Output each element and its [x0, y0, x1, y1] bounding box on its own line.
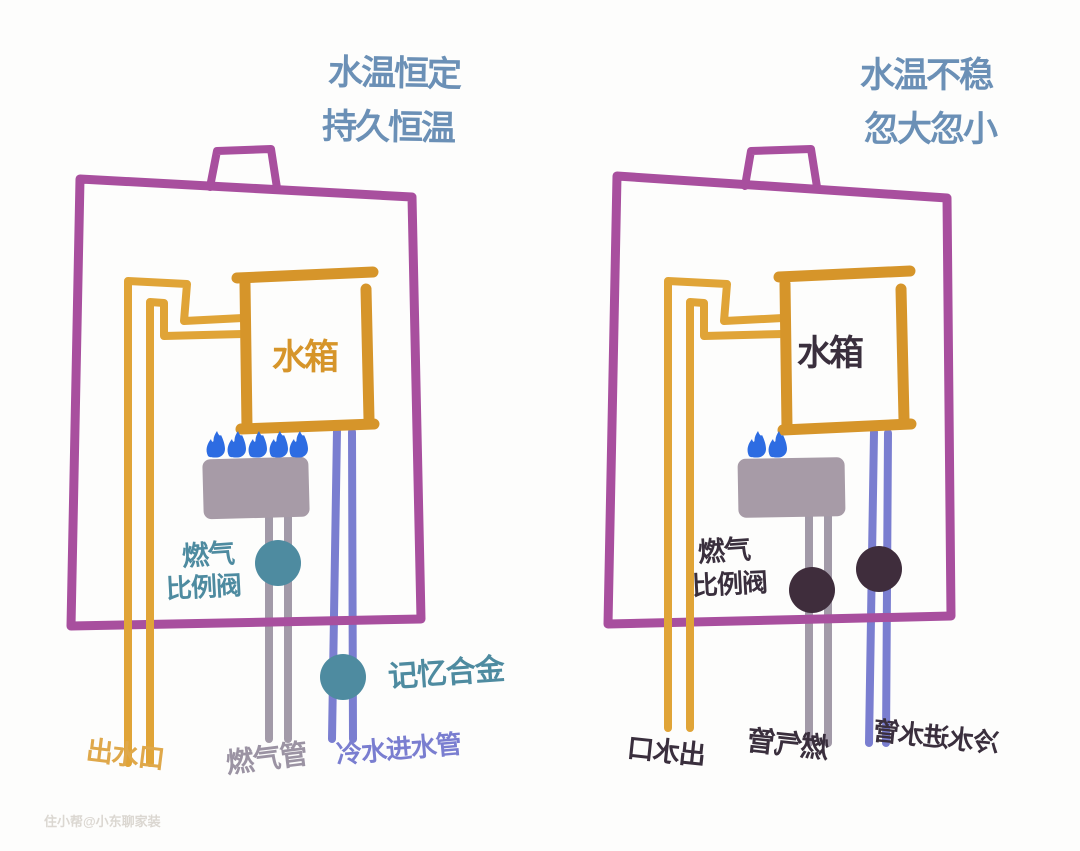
flame-icon	[228, 431, 246, 458]
hand-drawn-water-heater-comparison: 水温恒定 持久恒温 水温不稳 忽大忽小 水箱 燃气 比例阀 记忆合金 出水口 燃…	[0, 0, 1080, 851]
cold-water-valve	[856, 546, 902, 592]
right-tank-label: 水箱	[797, 336, 861, 373]
right-valve-label-line1: 燃气	[697, 535, 751, 567]
watermark: 住小帮@小东聊家装	[44, 815, 161, 829]
left-valve-label-line1: 燃气	[181, 539, 235, 571]
flame-icon	[270, 431, 288, 458]
right-heater-drawing	[608, 149, 951, 743]
right-title-line2: 忽大忽小	[864, 112, 996, 149]
burner-flames	[207, 431, 308, 458]
flame-icon	[748, 431, 766, 458]
burner-flames	[748, 431, 787, 458]
right-valve-label-line2: 比例阀	[691, 569, 767, 600]
burner	[202, 457, 310, 520]
gas-proportional-valve	[255, 540, 301, 586]
flame-icon	[249, 431, 267, 458]
outlet-pipe	[150, 302, 243, 763]
left-heater-drawing	[71, 149, 421, 763]
burner	[738, 457, 846, 518]
flame-icon	[290, 431, 308, 458]
right-title-line1: 水温不稳	[860, 58, 992, 95]
left-title-line1: 水温恒定	[328, 55, 461, 94]
memory-alloy-valve	[320, 654, 366, 700]
flame-icon	[207, 431, 225, 458]
left-title-line2: 持久恒温	[322, 109, 455, 148]
gas-proportional-valve	[789, 567, 835, 613]
left-tank-label: 水箱	[272, 340, 336, 377]
left-valve-label-line2: 比例阀	[165, 572, 241, 603]
outlet-pipe	[128, 281, 243, 763]
